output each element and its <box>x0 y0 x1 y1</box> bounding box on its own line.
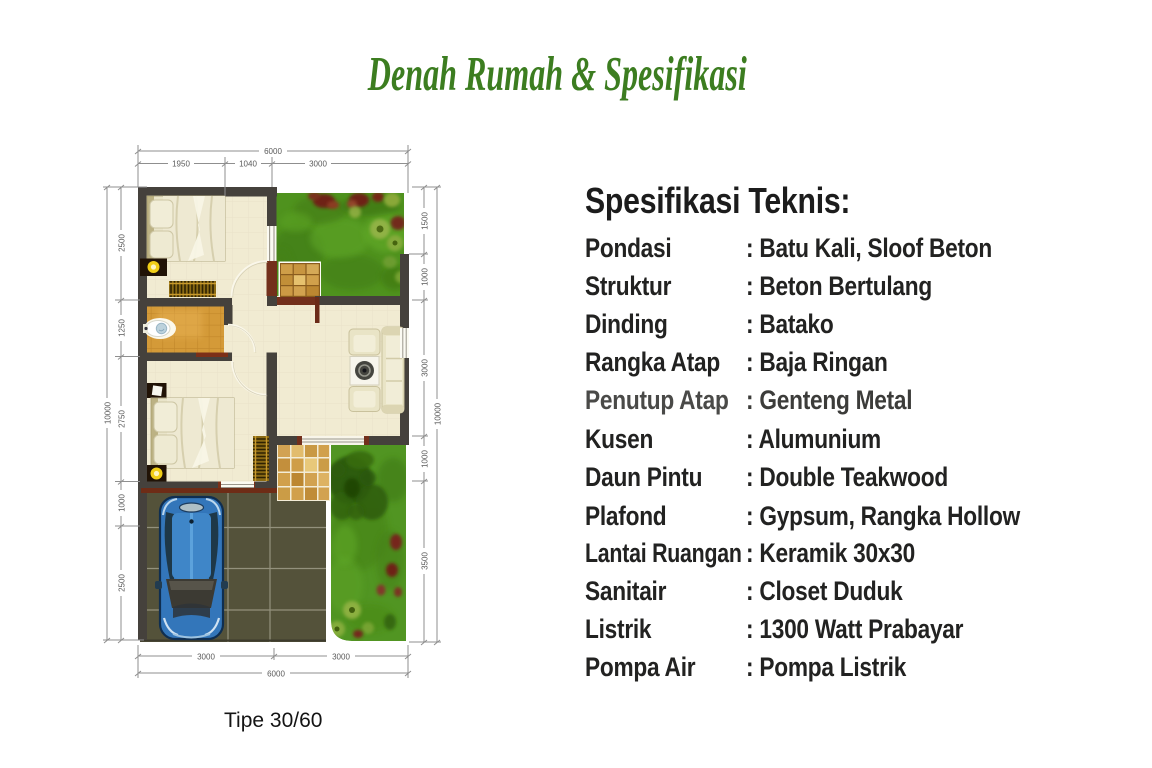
svg-text:3000: 3000 <box>197 653 215 662</box>
svg-text:1250: 1250 <box>118 319 127 337</box>
svg-text:3500: 3500 <box>421 552 430 570</box>
svg-text:2750: 2750 <box>118 410 127 428</box>
svg-text:10000: 10000 <box>104 401 113 424</box>
svg-text:3000: 3000 <box>421 359 430 377</box>
svg-text:2500: 2500 <box>118 574 127 592</box>
svg-text:1040: 1040 <box>239 160 257 169</box>
svg-text:10000: 10000 <box>434 402 443 425</box>
svg-text:3000: 3000 <box>332 653 350 662</box>
svg-text:1000: 1000 <box>421 268 430 286</box>
svg-text:1000: 1000 <box>421 450 430 468</box>
svg-text:6000: 6000 <box>267 670 285 679</box>
svg-text:1000: 1000 <box>118 494 127 512</box>
svg-text:3000: 3000 <box>309 160 327 169</box>
svg-text:2500: 2500 <box>118 234 127 252</box>
svg-text:1500: 1500 <box>421 212 430 230</box>
svg-text:6000: 6000 <box>264 147 282 156</box>
svg-text:1950: 1950 <box>172 160 190 169</box>
